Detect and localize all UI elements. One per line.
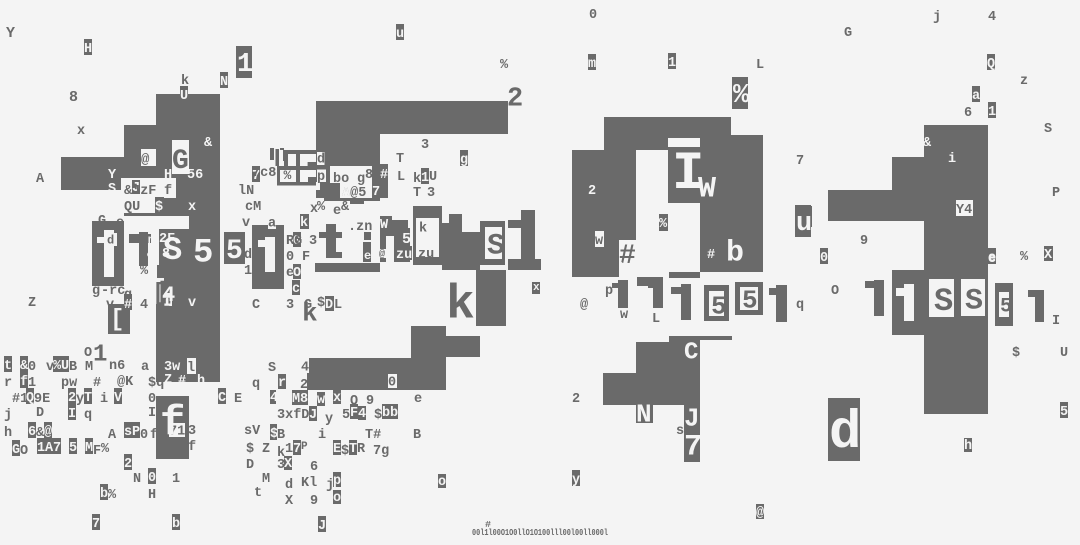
- svg-text:sV: sV: [244, 424, 261, 439]
- svg-text:$: $: [341, 444, 349, 459]
- svg-text:$: $: [155, 200, 163, 215]
- svg-text:%: %: [733, 81, 750, 111]
- svg-text:L: L: [652, 312, 660, 327]
- svg-text:9E: 9E: [34, 392, 50, 407]
- svg-text:L: L: [756, 58, 764, 73]
- svg-text:56: 56: [187, 168, 203, 183]
- svg-text:RG: RG: [286, 234, 302, 249]
- svg-text:7g: 7g: [373, 444, 389, 459]
- svg-text:@: @: [44, 425, 52, 440]
- svg-text:P: P: [301, 441, 308, 453]
- svg-text:J: J: [318, 519, 326, 534]
- svg-text:e: e: [333, 204, 341, 219]
- svg-text:k: k: [302, 299, 318, 329]
- svg-text:O: O: [84, 346, 92, 361]
- svg-text:A: A: [36, 172, 45, 187]
- svg-text:l: l: [187, 361, 195, 376]
- svg-text:#: #: [124, 298, 132, 313]
- svg-text:0: 0: [140, 428, 148, 443]
- svg-text:q: q: [84, 408, 92, 423]
- svg-text:$: $: [317, 296, 325, 311]
- svg-text:7: 7: [796, 154, 804, 169]
- svg-text:Q: Q: [987, 57, 995, 72]
- svg-text:6: 6: [28, 425, 36, 440]
- svg-text:H: H: [164, 168, 172, 183]
- svg-text:R: R: [357, 442, 366, 457]
- svg-text:1: 1: [244, 264, 252, 279]
- svg-text:Q: Q: [350, 394, 358, 409]
- svg-text:0: 0: [388, 375, 396, 390]
- svg-text:b: b: [726, 237, 744, 271]
- svg-text:s: s: [676, 424, 684, 439]
- svg-text:f: f: [164, 184, 172, 199]
- svg-text:4: 4: [988, 10, 996, 25]
- svg-text:h: h: [964, 439, 972, 454]
- svg-text:0: 0: [28, 360, 36, 375]
- svg-text:2: 2: [68, 391, 76, 406]
- svg-text:S: S: [1044, 122, 1052, 137]
- svg-text:3xfD: 3xfD: [277, 408, 309, 423]
- svg-text:cM: cM: [245, 200, 261, 215]
- svg-text:1: 1: [285, 442, 293, 457]
- svg-text:f: f: [20, 375, 28, 390]
- svg-text:B: B: [413, 428, 421, 443]
- svg-text:g: g: [460, 153, 468, 168]
- svg-text:i: i: [100, 392, 108, 407]
- svg-text:%: %: [659, 217, 668, 232]
- svg-text:W: W: [380, 218, 389, 233]
- svg-text:0: 0: [286, 250, 294, 265]
- svg-text:Z: Z: [262, 442, 270, 457]
- svg-text:bo: bo: [333, 172, 349, 187]
- svg-text:$: $: [1012, 346, 1020, 361]
- svg-text:G: G: [12, 443, 20, 458]
- svg-text:3: 3: [427, 186, 435, 201]
- svg-text:w: w: [595, 234, 604, 249]
- svg-text:D: D: [325, 298, 333, 313]
- svg-text:y: y: [76, 392, 84, 407]
- svg-text:z: z: [1020, 74, 1028, 89]
- svg-text:b: b: [382, 406, 390, 421]
- svg-text:2: 2: [572, 392, 580, 407]
- svg-text:q: q: [252, 377, 260, 392]
- svg-text:m: m: [588, 57, 596, 72]
- svg-text:d: d: [107, 234, 114, 248]
- svg-text:k: k: [300, 216, 308, 231]
- svg-text:6: 6: [310, 460, 318, 475]
- svg-text:2: 2: [507, 84, 523, 114]
- svg-text:E: E: [234, 392, 242, 407]
- svg-text:h: h: [4, 426, 12, 441]
- svg-text:%: %: [140, 264, 149, 279]
- svg-text:4: 4: [270, 391, 278, 406]
- svg-text:S: S: [934, 283, 953, 320]
- svg-text:&: &: [36, 426, 45, 441]
- svg-text:i: i: [318, 428, 326, 443]
- svg-text:5: 5: [711, 292, 727, 322]
- svg-text:e: e: [116, 216, 124, 231]
- svg-text:2: 2: [124, 457, 132, 472]
- svg-text:v: v: [242, 216, 250, 231]
- svg-text:p: p: [317, 170, 325, 185]
- svg-text:b: b: [106, 261, 113, 275]
- svg-text:%: %: [108, 488, 117, 503]
- svg-text:9: 9: [310, 494, 318, 509]
- svg-text:d: d: [285, 478, 293, 493]
- svg-text:0: 0: [148, 471, 156, 486]
- svg-text:0: 0: [148, 392, 156, 407]
- svg-text:%: %: [317, 200, 326, 215]
- svg-text:D: D: [246, 458, 254, 473]
- svg-text:U: U: [1060, 346, 1068, 361]
- svg-text:1: 1: [28, 376, 36, 391]
- svg-text:j: j: [4, 408, 12, 423]
- svg-text:@: @: [580, 298, 588, 313]
- svg-text:T: T: [413, 186, 421, 201]
- svg-text:5: 5: [226, 236, 243, 267]
- svg-text:A: A: [108, 428, 117, 443]
- svg-text:#: #: [93, 376, 101, 391]
- svg-text:00l1l00O1O0llO1O100lll00l00ll0: 00l1l00O1O0llO1O100lll00l00ll000l: [472, 528, 608, 538]
- svg-text:#: #: [178, 374, 186, 389]
- svg-text:f: f: [188, 440, 196, 455]
- svg-text:F: F: [93, 444, 101, 459]
- svg-text:B: B: [69, 360, 77, 375]
- svg-text:n6: n6: [109, 359, 125, 374]
- svg-text:%: %: [284, 168, 292, 183]
- svg-text:M: M: [85, 360, 93, 375]
- svg-text:5: 5: [193, 234, 213, 272]
- svg-text:S: S: [108, 182, 116, 197]
- svg-text:H: H: [148, 488, 156, 503]
- svg-text:k: k: [181, 74, 189, 89]
- svg-text:j: j: [326, 478, 334, 493]
- svg-text:Y: Y: [6, 25, 15, 42]
- svg-text:3: 3: [188, 424, 196, 439]
- svg-text:@: @: [141, 152, 150, 168]
- svg-text:w: w: [620, 308, 629, 323]
- svg-text:5: 5: [742, 286, 758, 316]
- svg-text:g: g: [92, 284, 100, 299]
- svg-text:7: 7: [372, 185, 380, 200]
- svg-text:k: k: [413, 172, 421, 187]
- svg-text:#1: #1: [12, 392, 28, 407]
- svg-text:6: 6: [964, 106, 972, 121]
- svg-text:8: 8: [69, 89, 78, 106]
- svg-text:5: 5: [402, 231, 411, 248]
- svg-text:N: N: [220, 75, 228, 90]
- svg-text:o: o: [438, 475, 446, 490]
- svg-text:7c8: 7c8: [252, 166, 276, 181]
- svg-text:8: 8: [365, 168, 373, 183]
- svg-text:T: T: [349, 442, 357, 457]
- svg-text:D: D: [36, 406, 44, 421]
- svg-text:q: q: [796, 298, 804, 313]
- svg-text:&JzF: &JzF: [124, 184, 156, 199]
- svg-text:J: J: [684, 404, 700, 434]
- svg-text:v: v: [188, 296, 196, 311]
- svg-text:Y4: Y4: [956, 203, 972, 218]
- svg-text:2: 2: [300, 378, 308, 393]
- svg-text:L: L: [397, 170, 405, 185]
- svg-text:E: E: [333, 442, 341, 457]
- svg-text:c: c: [292, 282, 300, 297]
- svg-text:e: e: [286, 266, 294, 281]
- svg-text:1: 1: [421, 171, 429, 186]
- svg-text:2: 2: [588, 184, 596, 199]
- svg-text:T#: T#: [365, 428, 381, 443]
- svg-text:1: 1: [37, 441, 45, 456]
- svg-text:S: S: [487, 230, 505, 264]
- svg-text:x: x: [333, 391, 341, 406]
- svg-text:zu: zu: [396, 248, 412, 263]
- svg-text:a: a: [268, 217, 276, 232]
- svg-text:Kl: Kl: [301, 476, 317, 491]
- svg-text:Y: Y: [108, 168, 117, 183]
- svg-text:s: s: [124, 425, 132, 440]
- svg-text:G: G: [844, 26, 852, 41]
- svg-text:p: p: [333, 474, 341, 489]
- svg-text:3: 3: [309, 234, 317, 249]
- svg-text:&: &: [341, 200, 350, 215]
- svg-text:T: T: [396, 152, 404, 167]
- svg-text:H: H: [84, 42, 92, 57]
- svg-text:8: 8: [300, 392, 308, 407]
- svg-text:%: %: [500, 58, 509, 73]
- svg-text:L: L: [334, 298, 342, 313]
- svg-text:4: 4: [140, 298, 148, 313]
- svg-text:S: S: [163, 232, 182, 269]
- svg-text:Z: Z: [28, 296, 36, 311]
- svg-text:Z: Z: [164, 373, 172, 388]
- svg-text:u: u: [396, 27, 404, 42]
- svg-text:&: &: [147, 247, 156, 262]
- svg-text:M: M: [262, 472, 270, 487]
- svg-text:a: a: [141, 360, 149, 375]
- svg-text:w: w: [317, 393, 326, 408]
- svg-text:X: X: [285, 494, 294, 509]
- svg-text:O: O: [20, 444, 28, 459]
- svg-text:r: r: [278, 376, 286, 391]
- svg-text:3: 3: [277, 458, 285, 473]
- svg-text:C: C: [252, 298, 260, 313]
- svg-text:7: 7: [92, 517, 100, 532]
- svg-text:$: $: [374, 408, 382, 423]
- svg-text:t: t: [254, 486, 262, 501]
- svg-text:y: y: [572, 473, 580, 488]
- svg-text:x: x: [77, 124, 85, 139]
- svg-text:U: U: [180, 89, 188, 104]
- svg-text:j: j: [933, 10, 941, 25]
- svg-text:7: 7: [684, 431, 702, 465]
- svg-text:F: F: [302, 250, 310, 265]
- svg-text:d: d: [317, 153, 325, 168]
- svg-text:O: O: [293, 266, 301, 281]
- svg-text:@: @: [756, 506, 764, 521]
- svg-text:N: N: [133, 472, 141, 487]
- svg-text:3: 3: [286, 298, 294, 313]
- svg-text:O: O: [831, 284, 839, 299]
- svg-text:9: 9: [366, 394, 374, 409]
- svg-text:QU: QU: [124, 200, 140, 215]
- svg-text:%: %: [101, 442, 110, 457]
- svg-text:f: f: [150, 428, 158, 443]
- svg-text:5: 5: [69, 441, 77, 456]
- svg-text:5: 5: [1060, 405, 1068, 420]
- svg-text:J: J: [309, 408, 317, 423]
- svg-text:P: P: [132, 425, 140, 440]
- svg-text:g: g: [357, 172, 365, 187]
- svg-text:v: v: [46, 360, 54, 375]
- svg-text:w: w: [621, 260, 627, 271]
- svg-text:P: P: [1052, 186, 1060, 201]
- svg-text:G: G: [98, 214, 106, 229]
- svg-text:N: N: [636, 400, 652, 430]
- svg-text:.zn: .zn: [348, 220, 372, 235]
- svg-text:W: W: [698, 173, 716, 207]
- svg-text:e: e: [414, 392, 422, 407]
- svg-text:X: X: [1044, 248, 1053, 263]
- svg-text:i: i: [948, 152, 956, 167]
- svg-text:o: o: [333, 491, 341, 506]
- svg-text:d: d: [829, 403, 861, 464]
- svg-text:1: 1: [172, 472, 180, 487]
- svg-text:M: M: [85, 441, 93, 456]
- svg-text:5: 5: [342, 408, 350, 423]
- svg-text:S: S: [965, 285, 983, 319]
- svg-text:2: 2: [1002, 316, 1009, 330]
- svg-text:3: 3: [421, 138, 429, 153]
- svg-text:0: 0: [589, 8, 597, 23]
- svg-text:7: 7: [53, 441, 61, 456]
- svg-text:4: 4: [358, 407, 366, 422]
- svg-text:y: y: [325, 412, 333, 427]
- svg-text:4: 4: [301, 360, 309, 375]
- svg-text:C: C: [684, 339, 698, 366]
- svg-text:f: f: [160, 399, 185, 447]
- svg-text:#: #: [380, 168, 388, 183]
- svg-text:lN: lN: [238, 184, 254, 199]
- svg-text:x: x: [188, 200, 196, 215]
- svg-text:r: r: [4, 376, 12, 391]
- svg-text:M: M: [292, 392, 300, 407]
- svg-text:u: u: [796, 209, 812, 239]
- svg-text:@K: @K: [117, 375, 134, 390]
- svg-text:a: a: [972, 89, 980, 104]
- svg-text:0: 0: [820, 251, 828, 266]
- svg-text:[: [: [110, 306, 124, 333]
- svg-text:$: $: [246, 442, 254, 457]
- svg-text:e: e: [988, 252, 996, 267]
- svg-text:%: %: [1020, 250, 1029, 265]
- svg-text:9: 9: [860, 234, 868, 249]
- svg-text:4: 4: [162, 283, 175, 308]
- svg-text:#: #: [707, 248, 715, 263]
- svg-text:p: p: [605, 284, 613, 299]
- svg-text:V: V: [114, 391, 123, 406]
- svg-text:A: A: [342, 186, 351, 201]
- svg-text:d: d: [244, 248, 252, 263]
- svg-text:e: e: [364, 249, 371, 263]
- svg-text:@: @: [379, 248, 385, 260]
- svg-text:X: X: [284, 457, 293, 472]
- svg-text:7: 7: [293, 442, 301, 457]
- svg-text:1: 1: [93, 341, 107, 368]
- svg-text:I: I: [148, 406, 156, 421]
- svg-text:U: U: [61, 359, 69, 374]
- svg-text:x: x: [533, 282, 540, 294]
- svg-text:1: 1: [668, 56, 676, 71]
- svg-text:&: &: [204, 136, 213, 151]
- svg-text:C: C: [218, 391, 226, 406]
- svg-text:k: k: [446, 279, 475, 333]
- svg-text:b: b: [100, 487, 108, 502]
- svg-text:1: 1: [988, 105, 996, 120]
- svg-text:k: k: [419, 222, 427, 237]
- svg-text:h: h: [197, 374, 205, 389]
- svg-text:b: b: [172, 517, 180, 532]
- svg-text:1: 1: [237, 50, 253, 80]
- svg-text:pw: pw: [61, 376, 78, 391]
- svg-text:I: I: [1052, 314, 1060, 329]
- svg-text:U: U: [429, 170, 437, 185]
- svg-text:zu: zu: [418, 248, 434, 263]
- svg-text:-rc: -rc: [101, 284, 125, 299]
- svg-text:&: &: [923, 136, 932, 151]
- svg-text:T: T: [84, 391, 92, 406]
- svg-text:I: I: [68, 407, 76, 422]
- svg-text:t: t: [4, 359, 12, 374]
- svg-text:b: b: [390, 406, 398, 421]
- svg-text:B: B: [277, 428, 285, 443]
- svg-text:$q: $q: [148, 376, 164, 391]
- svg-text:S: S: [268, 361, 276, 376]
